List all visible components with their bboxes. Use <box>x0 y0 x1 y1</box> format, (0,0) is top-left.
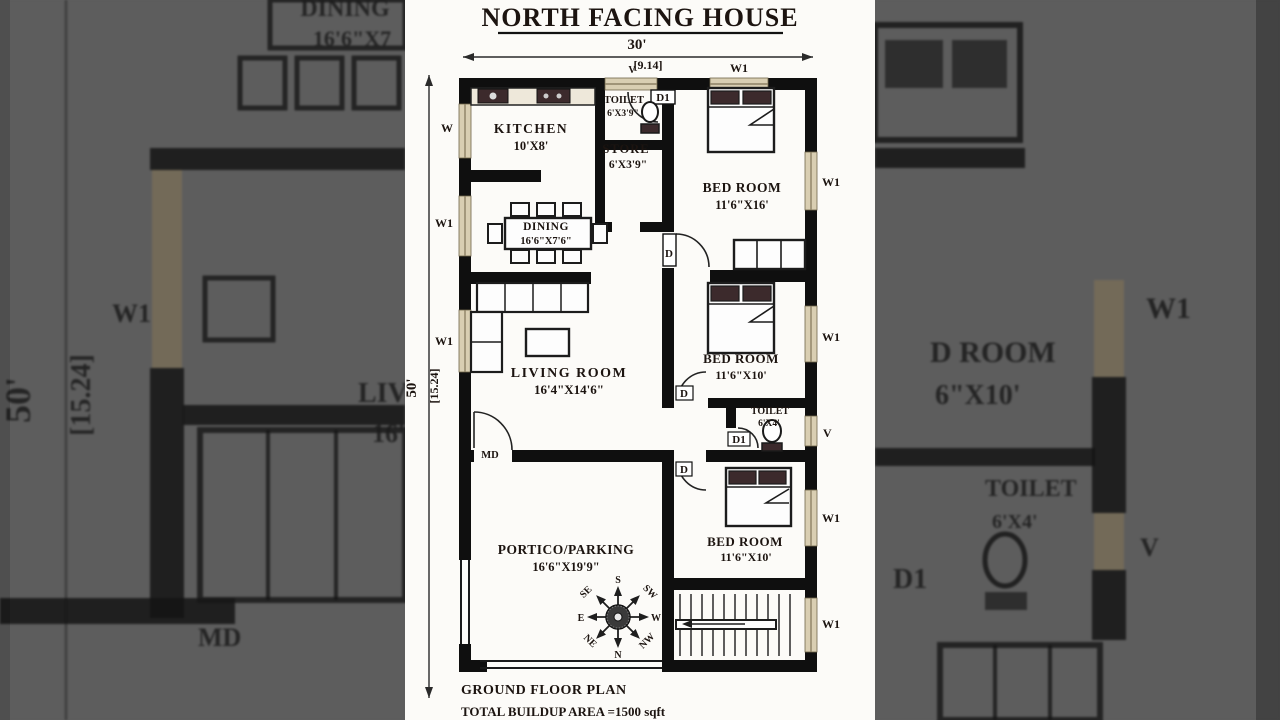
room-size-store: 6'X3'9" <box>609 159 647 171</box>
room-label-bedroom-top: BED ROOM <box>703 180 782 195</box>
room-size-living: 16'4"X14'6" <box>534 382 604 397</box>
window-label-stairs-w1: W1 <box>822 617 840 631</box>
depth-dimension-ft: 50' <box>404 378 420 397</box>
room-label-portico: PORTICO/PARKING <box>498 542 635 557</box>
bg-left-living-size: 16' <box>372 419 405 448</box>
width-dimension-m: [9.14] <box>634 58 663 72</box>
room-label-living: LIVING ROOM <box>511 366 627 381</box>
room-size-portico: 16'6"X19'9" <box>532 560 599 574</box>
room-size-bedroom-mid: 11'6"X10' <box>715 368 766 382</box>
bg-right-vent-label: V <box>1140 533 1159 562</box>
bg-right-toilet-label: TOILET <box>985 476 1077 502</box>
wardrobe-top-bedroom <box>734 240 805 269</box>
window-label-dining-w1: W1 <box>435 216 453 230</box>
compass-label-w: W <box>651 613 661 624</box>
bg-right-door-label: D1 <box>893 564 927 595</box>
bg-right-bedroom-label: D ROOM <box>930 336 1056 369</box>
room-size-bedroom-top: 11'6"X16' <box>715 198 768 212</box>
window-label-living-w1: W1 <box>435 334 453 348</box>
bed-mid <box>708 283 774 353</box>
floor-plan-canvas: 50' [15.24] W1 DINING 16'6"X7 LIVI 16' M… <box>0 0 1280 720</box>
window-label-bedbot-w1: W1 <box>822 511 840 525</box>
bg-right-window-label: W1 <box>1146 292 1191 325</box>
bed-top <box>708 88 774 152</box>
plan-name: GROUND FLOOR PLAN <box>461 683 627 698</box>
vent-label-toilet: V <box>823 426 832 440</box>
window-label-bedtop-w1: W1 <box>822 175 840 189</box>
door-label-main: MD <box>481 450 499 461</box>
bg-left-dining-size: 16'6"X7 <box>313 26 391 51</box>
depth-dimension-m: [15.24] <box>427 369 441 404</box>
floor-plan-sheet: NORTH FACING HOUSE 30' [9.14] 50' [15.24… <box>404 0 875 720</box>
bg-left-window-label: W1 <box>112 299 151 328</box>
video-frame: 50' [15.24] W1 DINING 16'6"X7 LIVI 16' M… <box>0 0 1280 720</box>
bg-right-toilet-size: 6'X4' <box>992 511 1038 533</box>
room-label-bedroom-mid: BED ROOM <box>703 351 779 366</box>
window-label-bedmid-w1: W1 <box>822 330 840 344</box>
width-dimension-ft: 30' <box>627 37 646 53</box>
bg-left-depth-m: [15.24] <box>66 354 97 436</box>
window-label-top-w1: W1 <box>730 61 748 75</box>
buildup-area: TOTAL BUILDUP AREA =1500 sqft <box>461 704 666 719</box>
room-size-dining: 16'6"X7'6" <box>520 236 571 247</box>
door-label-bedmid: D <box>680 388 688 400</box>
bg-left-dining-label: DINING <box>300 0 390 22</box>
room-label-bedroom-bottom: BED ROOM <box>707 534 783 549</box>
compass-label-s: S <box>615 575 621 586</box>
window-label-kitchen-w: W <box>441 121 453 135</box>
bg-left-main-door-label: MD <box>198 623 241 652</box>
room-size-bedroom-bottom: 11'6"X10' <box>720 550 771 564</box>
room-size-kitchen: 10'X8' <box>514 139 549 153</box>
door-label-bedtop: D <box>665 248 673 260</box>
plan-title: NORTH FACING HOUSE <box>481 3 798 32</box>
bed-bottom <box>726 468 791 526</box>
room-label-toilet-mid: TOILET <box>751 406 789 417</box>
room-label-store: STORE <box>602 142 649 156</box>
room-label-kitchen: KITCHEN <box>494 121 568 136</box>
compass-label-e: E <box>578 613 585 624</box>
door-label-d1-toilet: D1 <box>732 434 745 446</box>
right-edge-vignette <box>1256 0 1280 720</box>
compass-label-n: N <box>614 650 622 661</box>
toilet-top-wc <box>641 102 659 133</box>
left-edge-vignette <box>0 0 10 720</box>
coffee-table <box>526 329 569 356</box>
background-right-panel: W1 D ROOM 6"X10' TOILET 6'X4' V D1 <box>875 0 1280 720</box>
bg-right-bedroom-size: 6"X10' <box>935 380 1021 411</box>
vent-label-top: V <box>628 65 636 76</box>
room-label-dining: DINING <box>523 221 569 233</box>
background-left-panel: 50' [15.24] W1 DINING 16'6"X7 LIVI 16' M… <box>0 0 419 720</box>
room-label-toilet-top: TOILET <box>604 95 644 106</box>
door-label-d1-top: D1 <box>656 92 669 104</box>
room-size-toilet-mid: 6'X4' <box>758 419 780 429</box>
door-label-bedbot: D <box>680 464 688 476</box>
room-size-toilet-top: 6'X3'9" <box>607 109 639 119</box>
kitchen-counter <box>471 88 595 105</box>
